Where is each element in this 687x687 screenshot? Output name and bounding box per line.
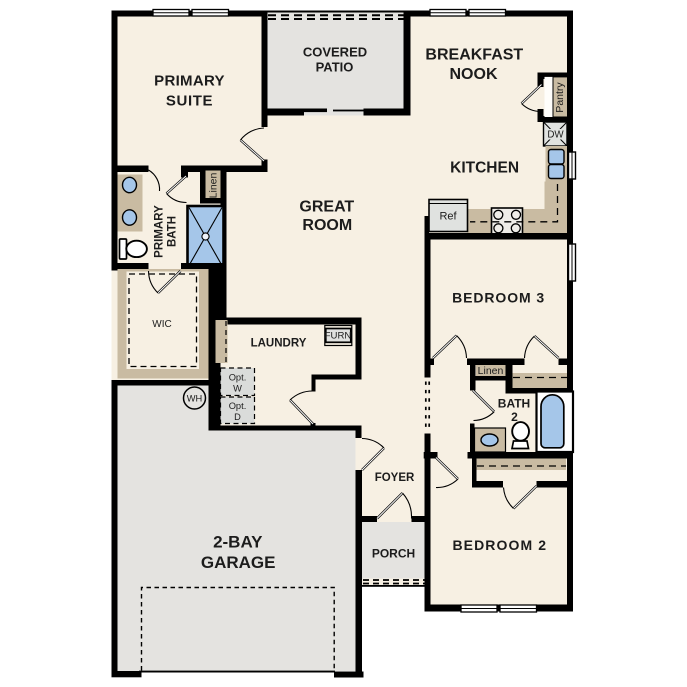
svg-text:BATH: BATH <box>498 397 530 411</box>
svg-text:Opt.: Opt. <box>229 401 247 411</box>
svg-text:Opt.: Opt. <box>229 373 247 383</box>
svg-text:BEDROOM 2: BEDROOM 2 <box>452 537 547 553</box>
svg-text:W: W <box>233 384 242 394</box>
svg-text:NOOK: NOOK <box>450 66 498 83</box>
svg-text:GARAGE: GARAGE <box>201 553 276 572</box>
svg-text:KITCHEN: KITCHEN <box>450 160 519 177</box>
svg-text:FOYER: FOYER <box>375 472 415 484</box>
svg-text:PRIMARY: PRIMARY <box>154 73 225 90</box>
svg-text:2-BAY: 2-BAY <box>213 533 263 552</box>
svg-text:SUITE: SUITE <box>166 92 213 109</box>
svg-text:PRIMARY: PRIMARY <box>154 205 166 258</box>
svg-text:BEDROOM 3: BEDROOM 3 <box>452 290 545 306</box>
svg-text:WIC: WIC <box>152 319 171 330</box>
svg-text:FURN: FURN <box>325 331 352 342</box>
svg-text:2: 2 <box>511 410 518 424</box>
svg-text:DW: DW <box>547 130 564 141</box>
svg-text:D: D <box>234 412 241 422</box>
svg-text:Ref: Ref <box>439 211 457 223</box>
svg-text:GREAT: GREAT <box>299 198 354 215</box>
svg-text:ROOM: ROOM <box>302 217 352 234</box>
svg-text:Linen: Linen <box>478 365 504 377</box>
svg-text:Pantry: Pantry <box>554 82 566 113</box>
svg-text:LAUNDRY: LAUNDRY <box>251 338 307 350</box>
svg-text:WH: WH <box>187 394 203 404</box>
svg-text:PATIO: PATIO <box>316 60 354 75</box>
svg-text:Linen: Linen <box>208 173 220 199</box>
svg-text:BREAKFAST: BREAKFAST <box>425 47 523 64</box>
svg-text:BATH: BATH <box>167 216 179 247</box>
svg-text:COVERED: COVERED <box>303 45 367 60</box>
svg-text:PORCH: PORCH <box>372 547 415 561</box>
